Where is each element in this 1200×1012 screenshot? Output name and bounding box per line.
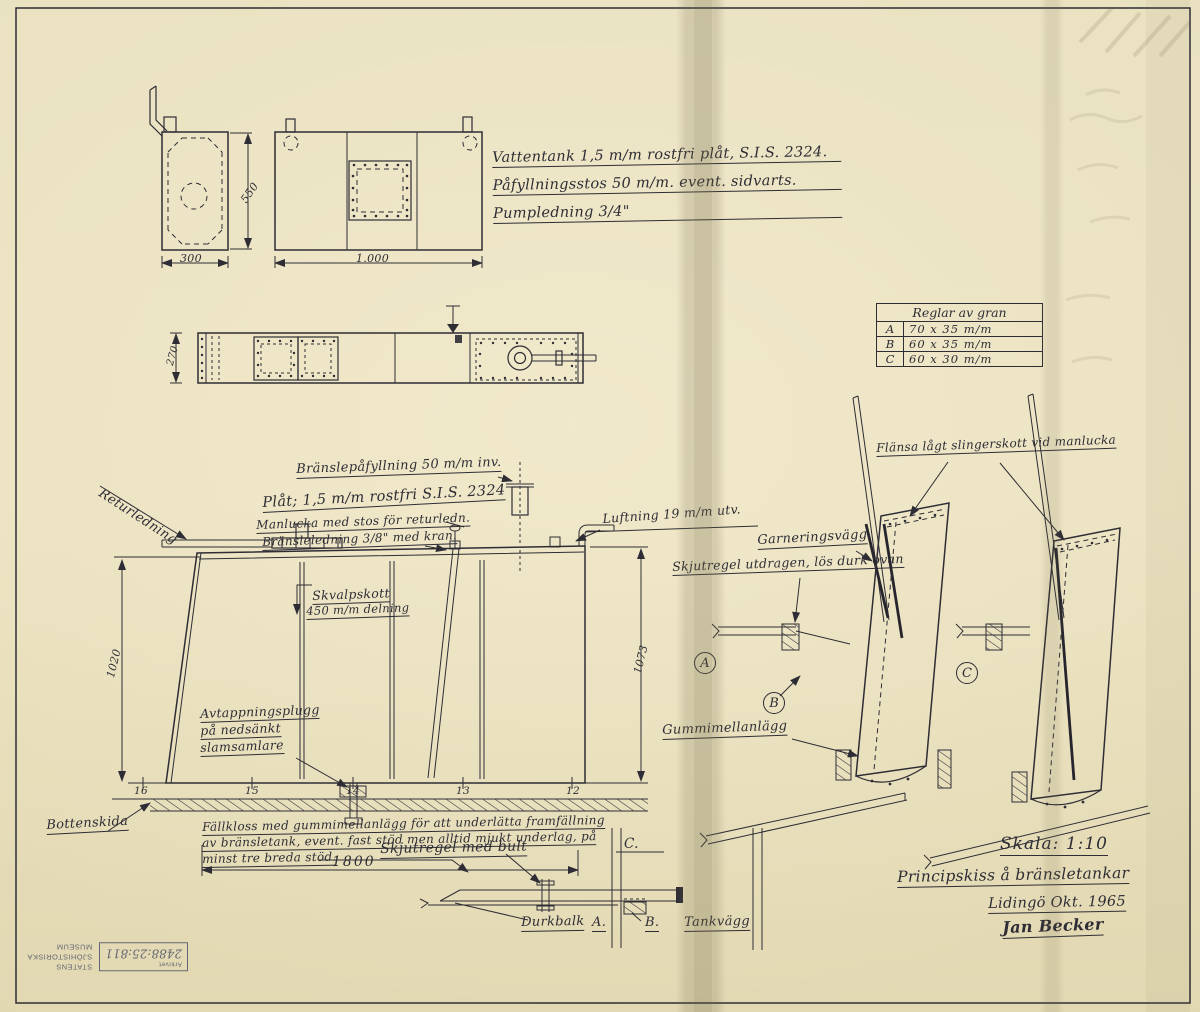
- reglar-ref: B: [877, 337, 904, 352]
- reglar-table: Reglar av gran A70 x 35 m/m B60 x 35 m/m…: [876, 303, 1043, 367]
- principle-sketch-right: [910, 394, 1150, 869]
- station-16: 16: [134, 785, 148, 797]
- stamp-org-line3: MUSEUM: [27, 942, 92, 952]
- drawing-sheet: Vattentank 1,5 m/m rostfri plåt, S.I.S. …: [0, 0, 1200, 1012]
- stamp-org-line2: SJÖHISTORISKA: [27, 952, 92, 962]
- title-scale: Skala: 1:10: [1000, 834, 1108, 856]
- stamp-ref: 2488:25:811: [105, 946, 182, 960]
- title-main: Principskiss å bränsletankar: [897, 864, 1130, 888]
- reglar-ref: C: [877, 352, 904, 367]
- reglar-ref: A: [877, 322, 904, 337]
- label-skjutregel-med-bult: Skjutregel med bult: [380, 838, 527, 859]
- plan-bolts: [257, 340, 335, 377]
- front-view: [275, 117, 482, 268]
- plan-view: [170, 306, 596, 383]
- bleed-through-marks: [1066, 8, 1190, 362]
- station-14: 14: [346, 785, 360, 797]
- label-avtappning-3: slamsamlare: [200, 737, 284, 757]
- label-fallkloss-3: minst tre breda stöd.: [202, 850, 337, 868]
- stamp-org: STATENS SJÖHISTORISKA MUSEUM: [27, 942, 92, 971]
- label-durkbalk: Durkbalk: [521, 914, 585, 932]
- dim-front-length: 1.000: [356, 252, 389, 265]
- title-place-date: Lidingö Okt. 1965: [988, 894, 1126, 914]
- label-tankvagg: Tankvägg: [684, 914, 750, 932]
- station-13: 13: [456, 785, 470, 797]
- stamp-dept: Arkivet: [105, 960, 182, 967]
- station-12: 12: [566, 785, 580, 797]
- marker-a: A: [694, 652, 716, 674]
- principle-sketch-left: [700, 396, 951, 847]
- stamp-org-line1: STATENS: [27, 962, 92, 972]
- note-pafyllningsstos: Påfyllningsstos 50 m/m. event. sidvarts.: [492, 172, 842, 196]
- reglar-size: 60 x 30 m/m: [904, 352, 1043, 367]
- stamp-ref-box: Arkivet 2488:25:811: [99, 942, 188, 971]
- end-view: [150, 86, 252, 268]
- reglar-size: 70 x 35 m/m: [904, 322, 1043, 337]
- marker-b: B: [763, 692, 785, 714]
- manhole-bolts: [352, 164, 409, 218]
- archive-stamp: Arkivet 2488:25:811 STATENS SJÖHISTORISK…: [36, 942, 188, 971]
- detail-ref-b: B.: [645, 915, 659, 932]
- marker-c: C: [956, 662, 978, 684]
- detail-ref-c: C.: [624, 836, 639, 852]
- dim-base-length: 1800: [332, 854, 376, 870]
- station-15: 15: [245, 785, 259, 797]
- reglar-size: 60 x 35 m/m: [904, 337, 1043, 352]
- spec-notes: Vattentank 1,5 m/m rostfri plåt, S.I.S. …: [492, 144, 843, 224]
- reglar-title: Reglar av gran: [912, 305, 1006, 322]
- dim-end-width: 300: [180, 252, 202, 265]
- title-signature: Jan Becker: [1002, 914, 1104, 939]
- detail-ref-a: A.: [592, 915, 606, 932]
